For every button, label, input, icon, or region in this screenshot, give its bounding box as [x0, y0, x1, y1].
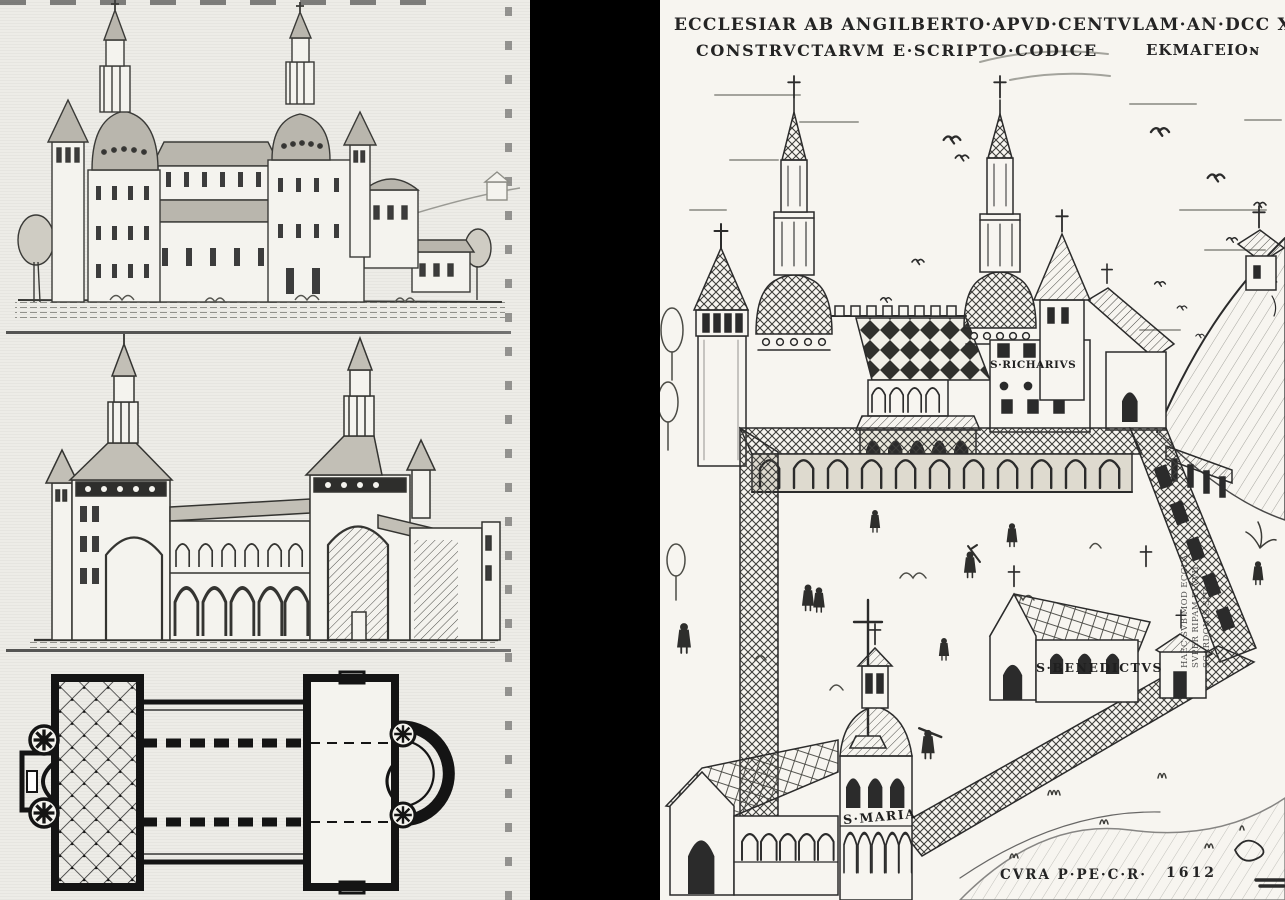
left-page-reconstruction-drawings [0, 0, 530, 900]
stair-turret-plan [391, 803, 415, 827]
engraver-credit: CVRA P·PE·C·R· [1000, 867, 1147, 883]
round-tower-east [1034, 210, 1090, 400]
scanned-book-spread: ECCLESIAR AB ANGILBERTO·APVD·CENTVLAM·AN… [0, 0, 1285, 900]
saint-benedictus-chapel [990, 546, 1212, 702]
westwork [55, 678, 140, 887]
marginal-note-line: SVPER RIPAM FLVVII [1191, 552, 1202, 668]
black-divider-band [530, 0, 660, 900]
stair-turret-plan [30, 799, 58, 827]
nave-section [170, 499, 310, 640]
engraving-title-line2: CONSTRVCTARVM E·SCRIPTO·CODICE [696, 41, 1098, 60]
engraving-drawing [660, 0, 1285, 900]
label-saint-benedictus: S·BENEDICTVS [1036, 660, 1163, 675]
marginal-note-rotated: HAEC SVB MOD ECCLA· SVPER RIPAM FLVVII S… [1180, 552, 1213, 668]
engraving-title-greek-word: EKMAΓEIOɴ [1146, 41, 1261, 59]
margin-plant [1246, 522, 1276, 548]
marginal-note-line: HAEC SVB MOD ECCLA· [1180, 552, 1191, 668]
saint-maria-church [666, 624, 912, 900]
stair-turret-plan [30, 726, 58, 754]
right-page-centula-engraving-1612: ECCLESIAR AB ANGILBERTO·APVD·CENTVLAM·AN… [660, 0, 1285, 900]
figure-perspective-view [0, 0, 520, 330]
west-tower [48, 0, 160, 302]
engraving-year: 1612 [1166, 865, 1217, 881]
west-spire-tower [756, 76, 832, 350]
right-chapel [1088, 264, 1174, 430]
figure-longitudinal-section [0, 330, 520, 650]
label-saint-richarius: S·RICHARIVS [990, 359, 1076, 371]
tree [18, 215, 54, 302]
margin-trees [660, 308, 685, 600]
engraving-title-line1: ECCLESIAR AB ANGILBERTO·APVD·CENTVLAM·AN… [674, 15, 1285, 35]
apse [364, 179, 418, 268]
stair-turret [407, 440, 435, 518]
east-tower-section [306, 338, 410, 640]
marginal-note-line: SCARDONIS SITA [1202, 552, 1213, 668]
transept [307, 678, 395, 887]
figure-ground-plan [0, 650, 520, 900]
west-tower-section [70, 334, 172, 640]
stair-turret-plan [391, 722, 415, 746]
maria-tower [840, 624, 912, 900]
nave [146, 142, 282, 302]
east-spire-tower [964, 76, 1036, 344]
cloister-roof-top [740, 428, 1142, 454]
distant-house [485, 172, 509, 200]
